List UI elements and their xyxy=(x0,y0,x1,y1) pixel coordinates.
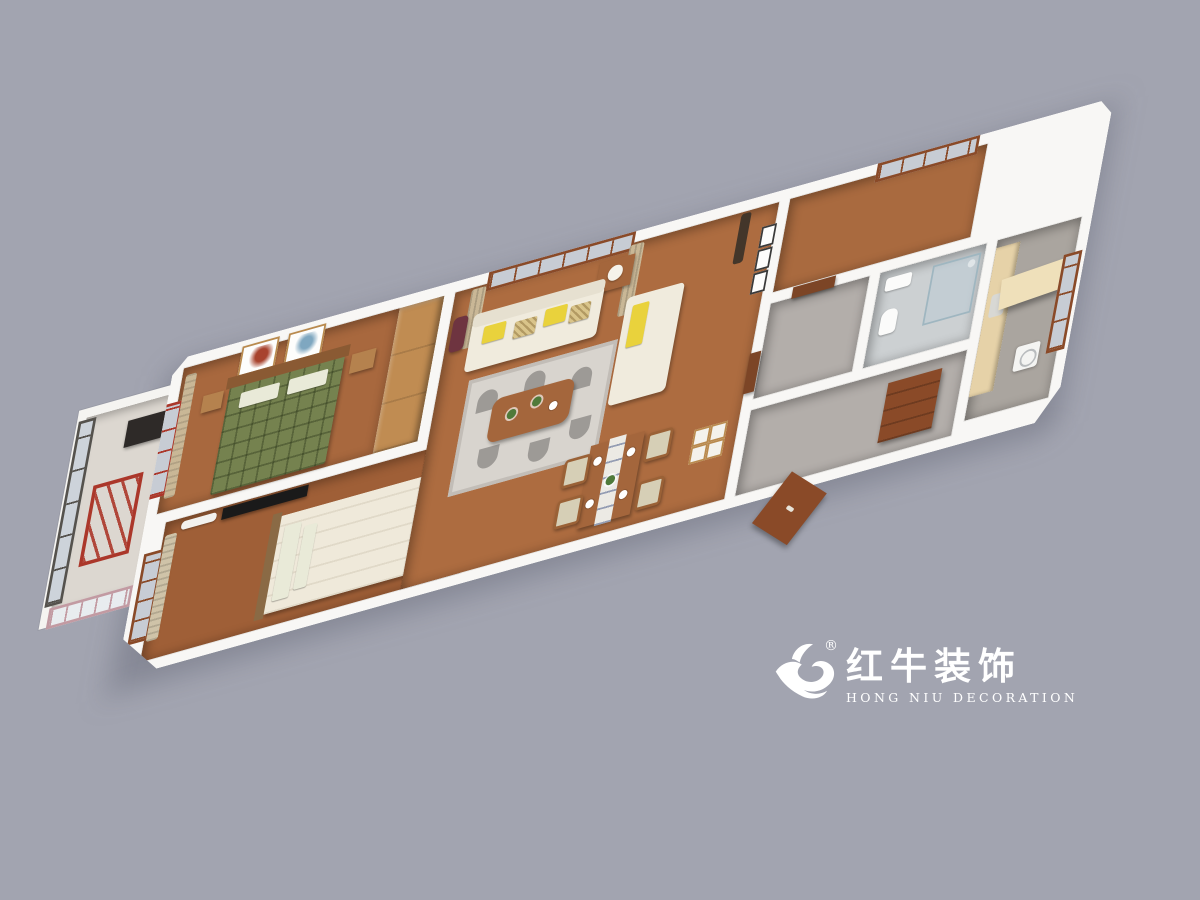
teacup xyxy=(548,400,558,411)
room-bathroom xyxy=(863,243,987,368)
room-living-dining xyxy=(400,202,779,589)
air-conditioner xyxy=(180,512,217,531)
pillow xyxy=(238,382,280,408)
brand-name-en: HONG NIU DECORATION xyxy=(846,690,1078,705)
green-plaid-bed xyxy=(210,355,345,496)
potted-plant xyxy=(506,408,517,420)
patterned-pillow xyxy=(512,316,538,340)
bull-logo-icon: ® xyxy=(770,640,842,702)
bathroom-sink xyxy=(884,271,913,292)
nightstand xyxy=(200,390,224,413)
building-slab xyxy=(116,97,1115,680)
toilet xyxy=(878,307,899,337)
door-handle xyxy=(785,505,794,513)
potted-plant xyxy=(531,395,542,407)
plate xyxy=(585,498,595,509)
rug-fan-motif xyxy=(475,444,499,471)
living-wall-frames xyxy=(750,224,774,295)
dining-chair xyxy=(634,475,665,511)
picture-frame xyxy=(758,223,777,249)
brand-name-cn: 红牛装饰 xyxy=(846,648,1078,685)
plate xyxy=(626,446,636,457)
shower-head xyxy=(967,258,976,268)
room-hallway xyxy=(753,276,869,399)
pillow xyxy=(287,369,329,395)
plate xyxy=(618,489,628,500)
rug-fan-motif xyxy=(567,415,591,442)
nightstand xyxy=(349,348,377,374)
yellow-pillow xyxy=(625,301,650,348)
picture-frame xyxy=(754,246,773,272)
curtain-dark xyxy=(732,212,752,265)
picture-frame xyxy=(750,270,769,296)
shoe-cabinet xyxy=(877,368,942,443)
washing-machine xyxy=(1012,340,1041,372)
rug-fan-motif xyxy=(526,437,550,464)
glass-shower xyxy=(922,252,982,326)
plate xyxy=(593,456,603,467)
apartment-3d-plan xyxy=(116,97,1115,680)
registered-mark: ® xyxy=(824,638,838,654)
study-window xyxy=(874,135,980,183)
brand-text: 红牛装饰 HONG NIU DECORATION xyxy=(846,648,1078,705)
patterned-pillow xyxy=(568,301,592,324)
dining-wall-frames xyxy=(688,421,726,463)
render-canvas: ® 红牛装饰 HONG NIU DECORATION xyxy=(0,0,1200,900)
table-lamp xyxy=(606,263,624,283)
brand-logo: ® 红牛装饰 HONG NIU DECORATION xyxy=(770,640,1078,705)
dining-chair xyxy=(643,426,674,462)
